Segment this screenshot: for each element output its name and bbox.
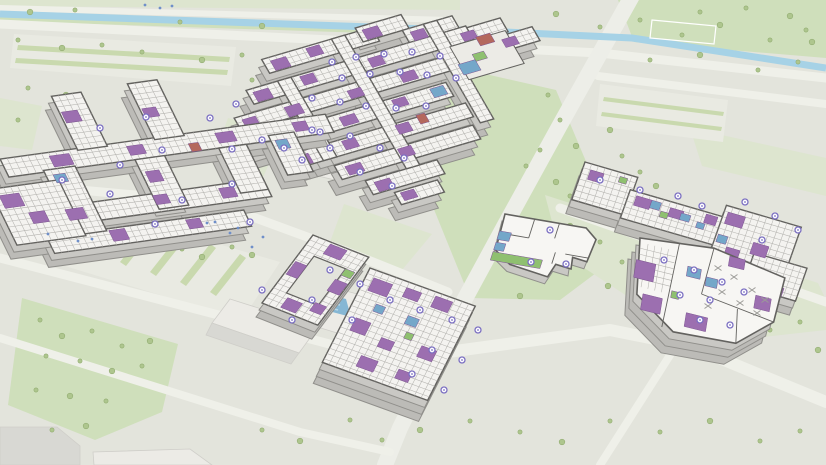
marker-dot-icon [663,259,665,261]
map-marker[interactable] [393,105,399,111]
marker-dot-icon [530,261,532,263]
tree-icon [553,179,559,185]
map-marker[interactable] [772,213,778,219]
tree-icon [518,430,522,434]
tree-icon [546,93,550,97]
tree-icon [50,428,54,432]
tree-icon [717,22,723,28]
marker-dot-icon [145,116,147,118]
tree-icon [804,28,808,32]
tree-icon [147,338,153,344]
tree-icon [199,254,205,260]
map-marker[interactable] [727,322,733,328]
tree-icon [517,293,523,299]
tree-icon [417,427,423,433]
marker-dot-icon [359,171,361,173]
marker-dot-icon [249,221,251,223]
tree-icon [538,148,542,152]
map-marker[interactable] [353,54,359,60]
tree-icon [758,439,762,443]
car-dot [251,246,254,249]
map-marker[interactable] [309,297,315,303]
map-marker[interactable] [337,99,343,105]
map-marker[interactable] [409,49,415,55]
marker-dot-icon [261,289,263,291]
marker-dot-icon [419,309,421,311]
tree-icon [73,8,77,12]
tree-icon [573,143,579,149]
marker-dot-icon [761,239,763,241]
campus-map-stage [0,0,826,465]
tree-icon [250,78,254,82]
marker-dot-icon [455,77,457,79]
map-marker[interactable] [152,221,158,227]
tree-icon [59,333,65,339]
tree-icon [120,344,124,348]
marker-dot-icon [341,77,343,79]
marker-dot-icon [319,131,321,133]
map-marker[interactable] [207,115,213,121]
marker-dot-icon [389,299,391,301]
map-marker[interactable] [547,227,553,233]
tree-icon [798,429,802,433]
tree-icon [553,11,559,17]
tree-icon [744,6,748,10]
tree-icon [240,53,244,57]
map-marker[interactable] [349,317,355,323]
car-dot [171,5,174,8]
car-dot [206,222,209,225]
marker-dot-icon [677,195,679,197]
marker-dot-icon [411,373,413,375]
map-marker[interactable] [423,103,429,109]
map-marker[interactable] [327,145,333,151]
marker-dot-icon [443,389,445,391]
tree-icon [16,118,20,122]
marker-dot-icon [701,205,703,207]
map-marker[interactable] [229,146,235,152]
marker-dot-icon [61,179,63,181]
tree-icon [140,364,144,368]
marker-dot-icon [99,127,101,129]
tree-icon [787,13,793,19]
map-marker[interactable] [707,297,713,303]
map-marker[interactable] [453,75,459,81]
marker-dot-icon [301,159,303,161]
tree-icon [620,154,624,158]
marker-dot-icon [235,103,237,105]
marker-dot-icon [291,319,293,321]
tree-icon [607,127,613,133]
map-marker[interactable] [329,59,335,65]
marker-dot-icon [359,283,361,285]
map-marker[interactable] [347,133,353,139]
tree-icon [756,68,760,72]
tree-icon [796,60,800,64]
tree-icon [680,33,684,37]
marker-dot-icon [451,319,453,321]
marker-dot-icon [774,215,776,217]
map-marker[interactable] [691,267,697,273]
tree-icon [260,428,264,432]
map-marker[interactable] [367,71,373,77]
marker-dot-icon [797,229,799,231]
marker-dot-icon [679,294,681,296]
map-marker[interactable] [339,75,345,81]
map-marker[interactable] [528,259,534,265]
map-marker[interactable] [597,177,603,183]
tree-icon [559,439,565,445]
tree-icon [100,43,104,47]
marker-dot-icon [395,107,397,109]
marker-dot-icon [311,97,313,99]
map-marker[interactable] [699,203,705,209]
tree-icon [608,419,612,423]
marker-dot-icon [565,263,567,265]
map-marker[interactable] [309,95,315,101]
map-marker[interactable] [143,114,149,120]
map-marker[interactable] [377,145,383,151]
marker-dot-icon [549,229,551,231]
map-marker[interactable] [661,257,667,263]
marker-dot-icon [599,179,601,181]
marker-dot-icon [311,299,313,301]
map-marker[interactable] [357,169,363,175]
tree-icon [638,18,642,22]
map-marker[interactable] [441,387,447,393]
campus-3d-map[interactable] [0,0,826,465]
marker-dot-icon [311,129,313,131]
map-marker[interactable] [117,162,123,168]
marker-dot-icon [261,139,263,141]
tree-icon [297,438,303,444]
map-marker[interactable] [437,53,443,59]
marker-dot-icon [349,135,351,137]
marker-dot-icon [729,324,731,326]
map-marker[interactable] [179,197,185,203]
marker-dot-icon [425,105,427,107]
map-marker[interactable] [259,137,265,143]
marker-dot-icon [477,329,479,331]
tree-icon [698,10,702,14]
tree-icon [638,170,642,174]
marker-dot-icon [231,148,233,150]
marker-dot-icon [329,269,331,271]
tree-icon [697,52,703,58]
map-marker[interactable] [741,289,747,295]
tree-icon [815,347,821,353]
marker-dot-icon [383,53,385,55]
map-marker[interactable] [563,261,569,267]
car-dot [144,4,147,7]
tree-icon [648,58,652,62]
map-marker[interactable] [159,147,165,153]
marker-dot-icon [379,147,381,149]
marker-dot-icon [431,349,433,351]
tree-icon [67,393,73,399]
map-marker[interactable] [229,181,235,187]
map-marker[interactable] [409,371,415,377]
marker-dot-icon [391,185,393,187]
map-marker[interactable] [387,297,393,303]
map-marker[interactable] [357,281,363,287]
tree-icon [140,50,144,54]
tree-icon [620,260,624,264]
map-marker[interactable] [675,193,681,199]
marker-dot-icon [399,71,401,73]
marker-dot-icon [329,147,331,149]
tree-icon [658,430,662,434]
map-marker[interactable] [417,307,423,313]
marker-dot-icon [351,319,353,321]
tree-icon [27,9,33,15]
map-marker[interactable] [449,317,455,323]
tree-icon [26,86,30,90]
tree-icon [809,39,815,45]
tree-icon [558,118,562,122]
marker-dot-icon [693,269,695,271]
map-marker[interactable] [259,287,265,293]
marker-dot-icon [365,105,367,107]
car-dot [47,233,50,236]
map-marker[interactable] [363,103,369,109]
car-dot [91,238,94,241]
tree-icon [605,283,611,289]
map-marker[interactable] [299,157,305,163]
tree-icon [468,419,472,423]
map-marker[interactable] [289,317,295,323]
car-dot [229,232,232,235]
marker-dot-icon [355,56,357,58]
map-marker[interactable] [697,317,703,323]
tree-icon [598,240,602,244]
tree-icon [598,25,602,29]
highlighted-room[interactable] [497,231,512,242]
tree-icon [59,45,65,51]
map-marker[interactable] [389,183,395,189]
tree-icon [380,438,384,442]
map-marker[interactable] [429,347,435,353]
tree-icon [90,329,94,333]
tree-icon [230,245,234,249]
marker-dot-icon [699,319,701,321]
marker-dot-icon [181,199,183,201]
map-marker[interactable] [97,125,103,131]
marker-dot-icon [109,193,111,195]
marker-dot-icon [411,51,413,53]
tree-icon [249,252,255,258]
marker-dot-icon [161,149,163,151]
tree-icon [348,418,352,422]
tree-icon [768,38,772,42]
marker-dot-icon [403,157,405,159]
tree-icon [83,423,89,429]
tree-icon [707,418,713,424]
tree-icon [259,23,265,29]
tree-icon [38,318,42,322]
car-dot [214,221,217,224]
tree-icon [78,359,82,363]
map-marker[interactable] [742,199,748,205]
tree-icon [653,183,659,189]
map-marker[interactable] [475,327,481,333]
map-marker[interactable] [233,101,239,107]
marker-dot-icon [461,359,463,361]
marker-dot-icon [426,74,428,76]
marker-dot-icon [154,223,156,225]
map-marker[interactable] [719,279,725,285]
map-marker[interactable] [381,51,387,57]
car-dot [77,240,80,243]
map-marker[interactable] [281,145,287,151]
map-marker[interactable] [247,219,253,225]
tree-icon [524,164,528,168]
tree-icon [109,368,115,374]
marker-dot-icon [721,281,723,283]
map-marker[interactable] [459,357,465,363]
map-marker[interactable] [309,127,315,133]
marker-dot-icon [331,61,333,63]
map-marker[interactable] [677,292,683,298]
marker-dot-icon [283,147,285,149]
car-dot [262,236,265,239]
marker-dot-icon [744,201,746,203]
map-marker[interactable] [795,227,801,233]
marker-dot-icon [369,73,371,75]
marker-dot-icon [743,291,745,293]
marker-dot-icon [231,183,233,185]
tree-icon [44,354,48,358]
map-marker[interactable] [107,191,113,197]
marker-dot-icon [439,55,441,57]
car-dot [237,227,240,230]
marker-dot-icon [709,299,711,301]
map-marker[interactable] [401,155,407,161]
map-marker[interactable] [424,72,430,78]
highlighted-room[interactable] [494,242,506,251]
marker-dot-icon [209,117,211,119]
marker-dot-icon [639,189,641,191]
tree-icon [34,388,38,392]
marker-dot-icon [119,164,121,166]
map-marker[interactable] [327,267,333,273]
map-marker[interactable] [59,177,65,183]
tree-icon [178,20,182,24]
marker-dot-icon [339,101,341,103]
tree-icon [798,320,802,324]
tree-icon [104,399,108,403]
map-marker[interactable] [759,237,765,243]
tree-icon [16,38,20,42]
map-marker[interactable] [397,69,403,75]
map-marker[interactable] [317,129,323,135]
map-marker[interactable] [637,187,643,193]
tree-icon [199,57,205,63]
car-dot [159,7,162,10]
